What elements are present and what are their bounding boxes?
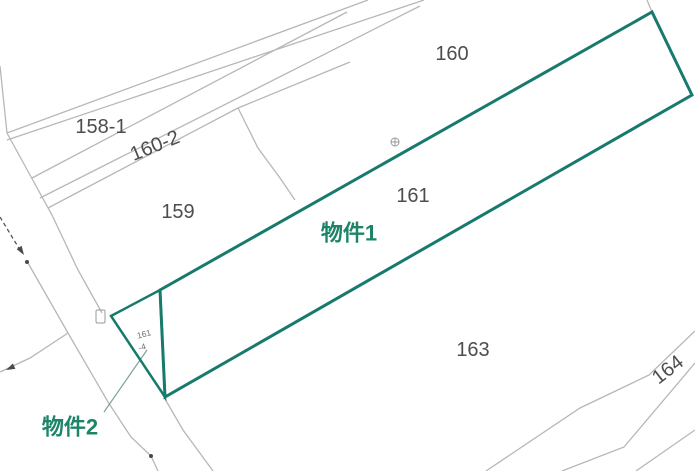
property1-label: 物件1	[321, 221, 377, 246]
parcel-label-158-1: 158-1	[75, 116, 126, 138]
parcel-label-161: 161	[396, 185, 429, 207]
boundary-159-160-divider	[238, 108, 295, 200]
boundary-160-right-stub	[647, 0, 652, 12]
cadastral-map: 158-1160-2159160161163164161-4物件1物件2	[0, 0, 695, 471]
boundary-road-right-edge	[7, 133, 102, 313]
boundary-road-left-edge	[28, 263, 158, 471]
parcel-label-160: 160	[435, 43, 468, 65]
parcel-label-161-4b: -4	[137, 341, 147, 353]
survey-dot-upper	[25, 260, 29, 264]
parcel-label-159: 159	[161, 201, 194, 223]
branch-arrowhead	[6, 364, 15, 371]
survey-arrow-line	[0, 217, 20, 250]
boundary-road-top-stub	[0, 66, 7, 133]
boundary-below-triangle	[165, 399, 213, 471]
boundary-marker-square	[96, 310, 105, 323]
survey-dot-lower	[149, 454, 153, 458]
parcel-label-163: 163	[456, 339, 489, 361]
parcel-label-164: 164	[648, 351, 688, 389]
boundary-160-2-lower	[40, 6, 420, 198]
parcel-label-161-4a: 161	[136, 327, 153, 340]
boundary-158-160-2	[32, 12, 347, 178]
boundary-corner-southeast	[636, 430, 695, 471]
cadastral-map-canvas: 158-1160-2159160161163164161-4物件1物件2	[0, 0, 695, 471]
boundary-164-lower	[562, 363, 695, 471]
property2-label: 物件2	[42, 415, 98, 440]
boundary-upper-strip-1	[7, 0, 368, 133]
parcel-label-160-2: 160-2	[127, 126, 183, 166]
survey-arrowhead	[17, 246, 24, 255]
boundary-upper-strip-2	[7, 0, 424, 140]
